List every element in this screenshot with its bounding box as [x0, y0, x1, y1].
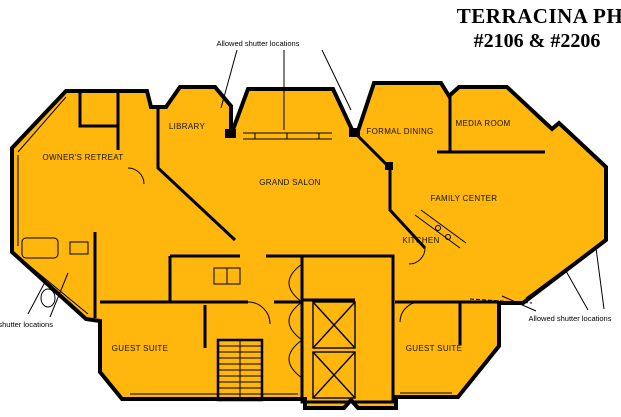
- room-label-formal-dining: FORMAL DINING: [366, 127, 433, 136]
- room-label-kitchen: KITCHEN: [402, 236, 439, 245]
- toilet: [41, 289, 55, 307]
- plan-outline: [12, 83, 606, 408]
- room-label-owners-retreat: OWNER'S RETREAT: [43, 153, 124, 162]
- room-label-library: LIBRARY: [169, 122, 206, 131]
- column: [349, 128, 360, 137]
- page-title: TERRACINA PH: [457, 4, 621, 28]
- room-label-grand-salon: GRAND SALON: [259, 178, 321, 187]
- annotation-bottom-right: Allowed shutter locations: [529, 314, 612, 323]
- column: [225, 129, 236, 138]
- room-label-guest-suite-left: GUEST SUITE: [112, 344, 169, 353]
- floorplan-page: OWNER'S RETREAT LIBRARY GRAND SALON FORM…: [0, 0, 621, 417]
- room-label-media-room: MEDIA ROOM: [455, 119, 510, 128]
- column: [385, 162, 393, 170]
- annotation-bottom-left: Allowed shutter locations: [0, 320, 53, 329]
- room-label-guest-suite-right: GUEST SUITE: [406, 344, 463, 353]
- title-block: TERRACINA PH #2106 & #2206: [457, 4, 621, 52]
- room-label-family-center: FAMILY CENTER: [431, 194, 498, 203]
- unit-numbers: #2106 & #2206: [474, 30, 601, 52]
- annotation-top: Allowed shutter locations: [217, 39, 300, 48]
- floor-plan-drawing: OWNER'S RETREAT LIBRARY GRAND SALON FORM…: [0, 0, 621, 417]
